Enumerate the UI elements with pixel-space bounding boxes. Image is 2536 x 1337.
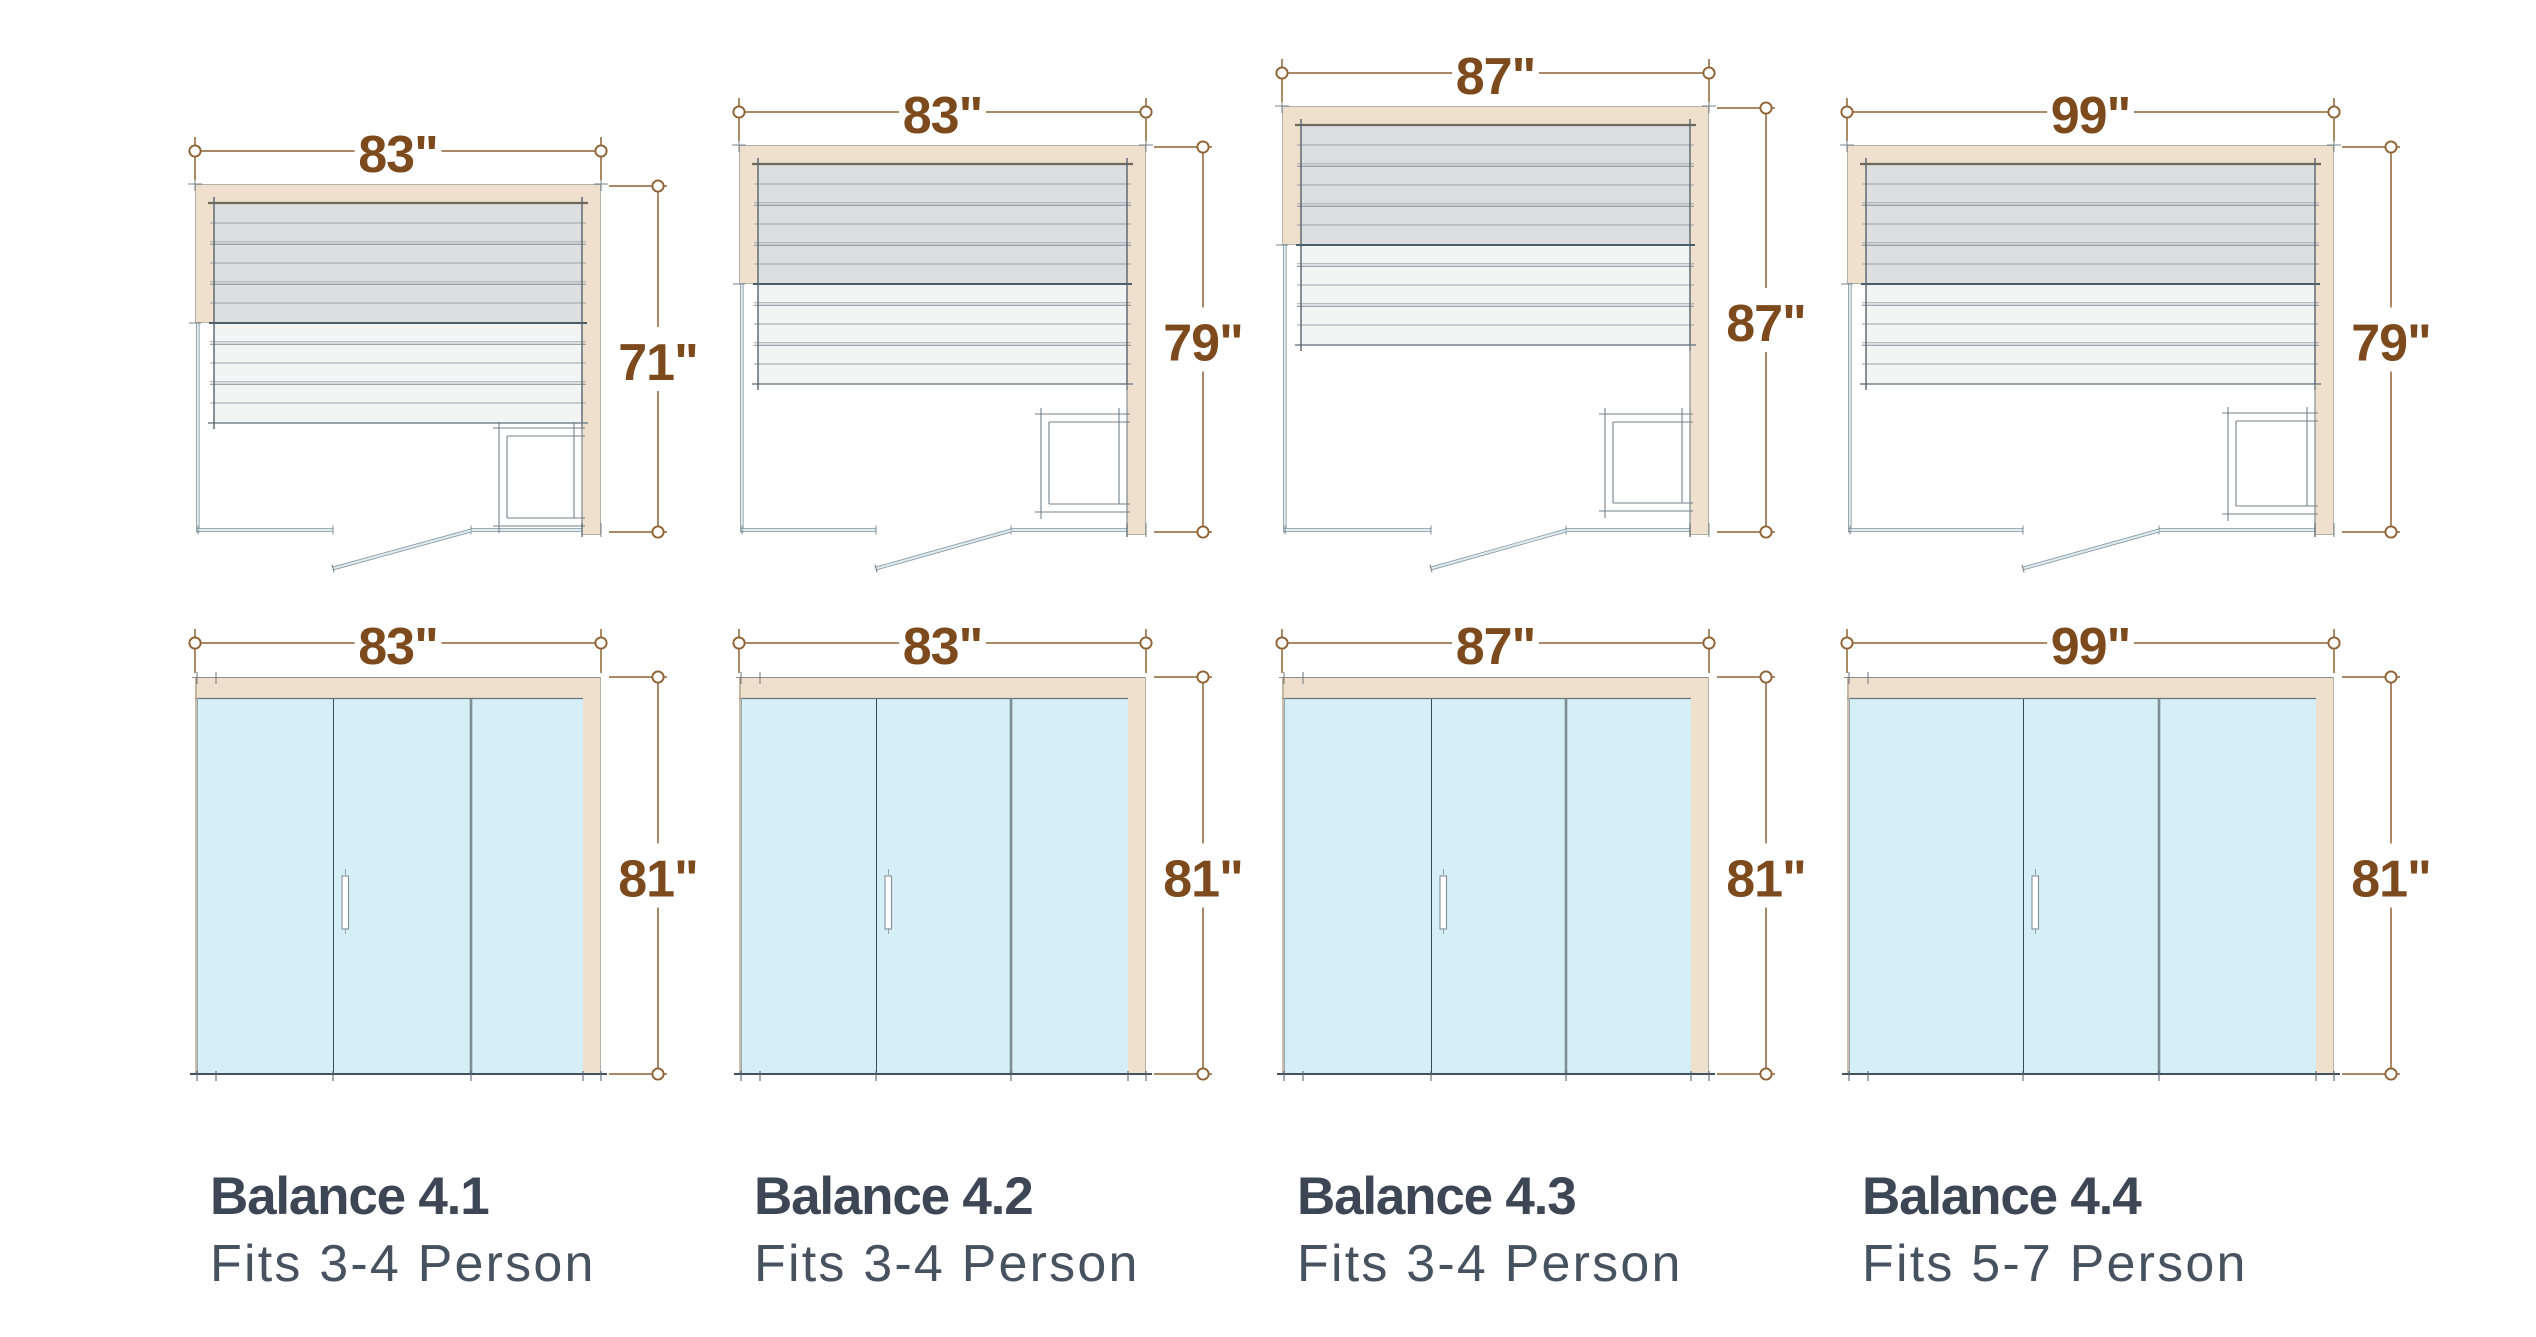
svg-text:Fits 3-4 Person: Fits 3-4 Person bbox=[1297, 1235, 1683, 1293]
svg-text:87": 87" bbox=[1726, 295, 1806, 353]
svg-text:83": 83" bbox=[358, 618, 438, 676]
svg-text:87": 87" bbox=[1456, 48, 1536, 106]
svg-text:87": 87" bbox=[1456, 618, 1536, 676]
svg-text:Balance 4.3: Balance 4.3 bbox=[1297, 1167, 1575, 1226]
svg-text:Balance 4.1: Balance 4.1 bbox=[210, 1167, 488, 1226]
svg-text:Balance 4.4: Balance 4.4 bbox=[1862, 1167, 2142, 1226]
svg-text:Fits 3-4 Person: Fits 3-4 Person bbox=[754, 1235, 1140, 1293]
svg-text:83": 83" bbox=[903, 87, 983, 145]
svg-text:81": 81" bbox=[2351, 851, 2431, 909]
svg-text:79": 79" bbox=[2351, 315, 2431, 373]
svg-text:81": 81" bbox=[1163, 851, 1243, 909]
svg-text:71": 71" bbox=[618, 334, 698, 392]
svg-text:99": 99" bbox=[2051, 618, 2131, 676]
svg-text:83": 83" bbox=[903, 618, 983, 676]
svg-text:Fits 3-4 Person: Fits 3-4 Person bbox=[210, 1235, 596, 1293]
svg-text:99": 99" bbox=[2051, 87, 2131, 145]
svg-text:81": 81" bbox=[618, 851, 698, 909]
svg-text:79": 79" bbox=[1163, 315, 1243, 373]
svg-text:Fits 5-7 Person: Fits 5-7 Person bbox=[1862, 1235, 2248, 1293]
svg-text:81": 81" bbox=[1726, 851, 1806, 909]
svg-text:Balance 4.2: Balance 4.2 bbox=[754, 1167, 1032, 1226]
svg-text:83": 83" bbox=[358, 126, 438, 184]
